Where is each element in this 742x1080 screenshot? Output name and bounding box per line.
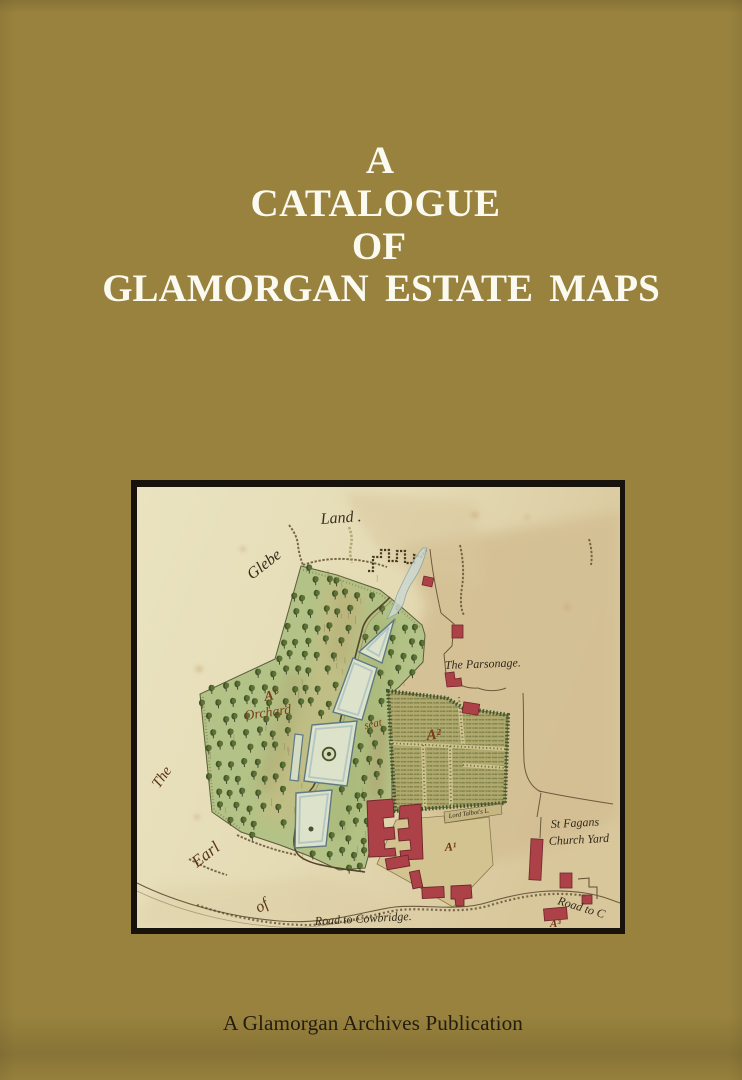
svg-text:St Fagans: St Fagans (550, 814, 599, 831)
svg-text:Land .: Land . (319, 508, 362, 528)
svg-text:A³: A³ (549, 918, 561, 928)
svg-text:A°: A° (262, 688, 281, 706)
svg-text:The Parsonage.: The Parsonage. (445, 655, 521, 672)
svg-text:A²: A² (425, 726, 443, 744)
svg-text:A¹: A¹ (443, 839, 457, 854)
